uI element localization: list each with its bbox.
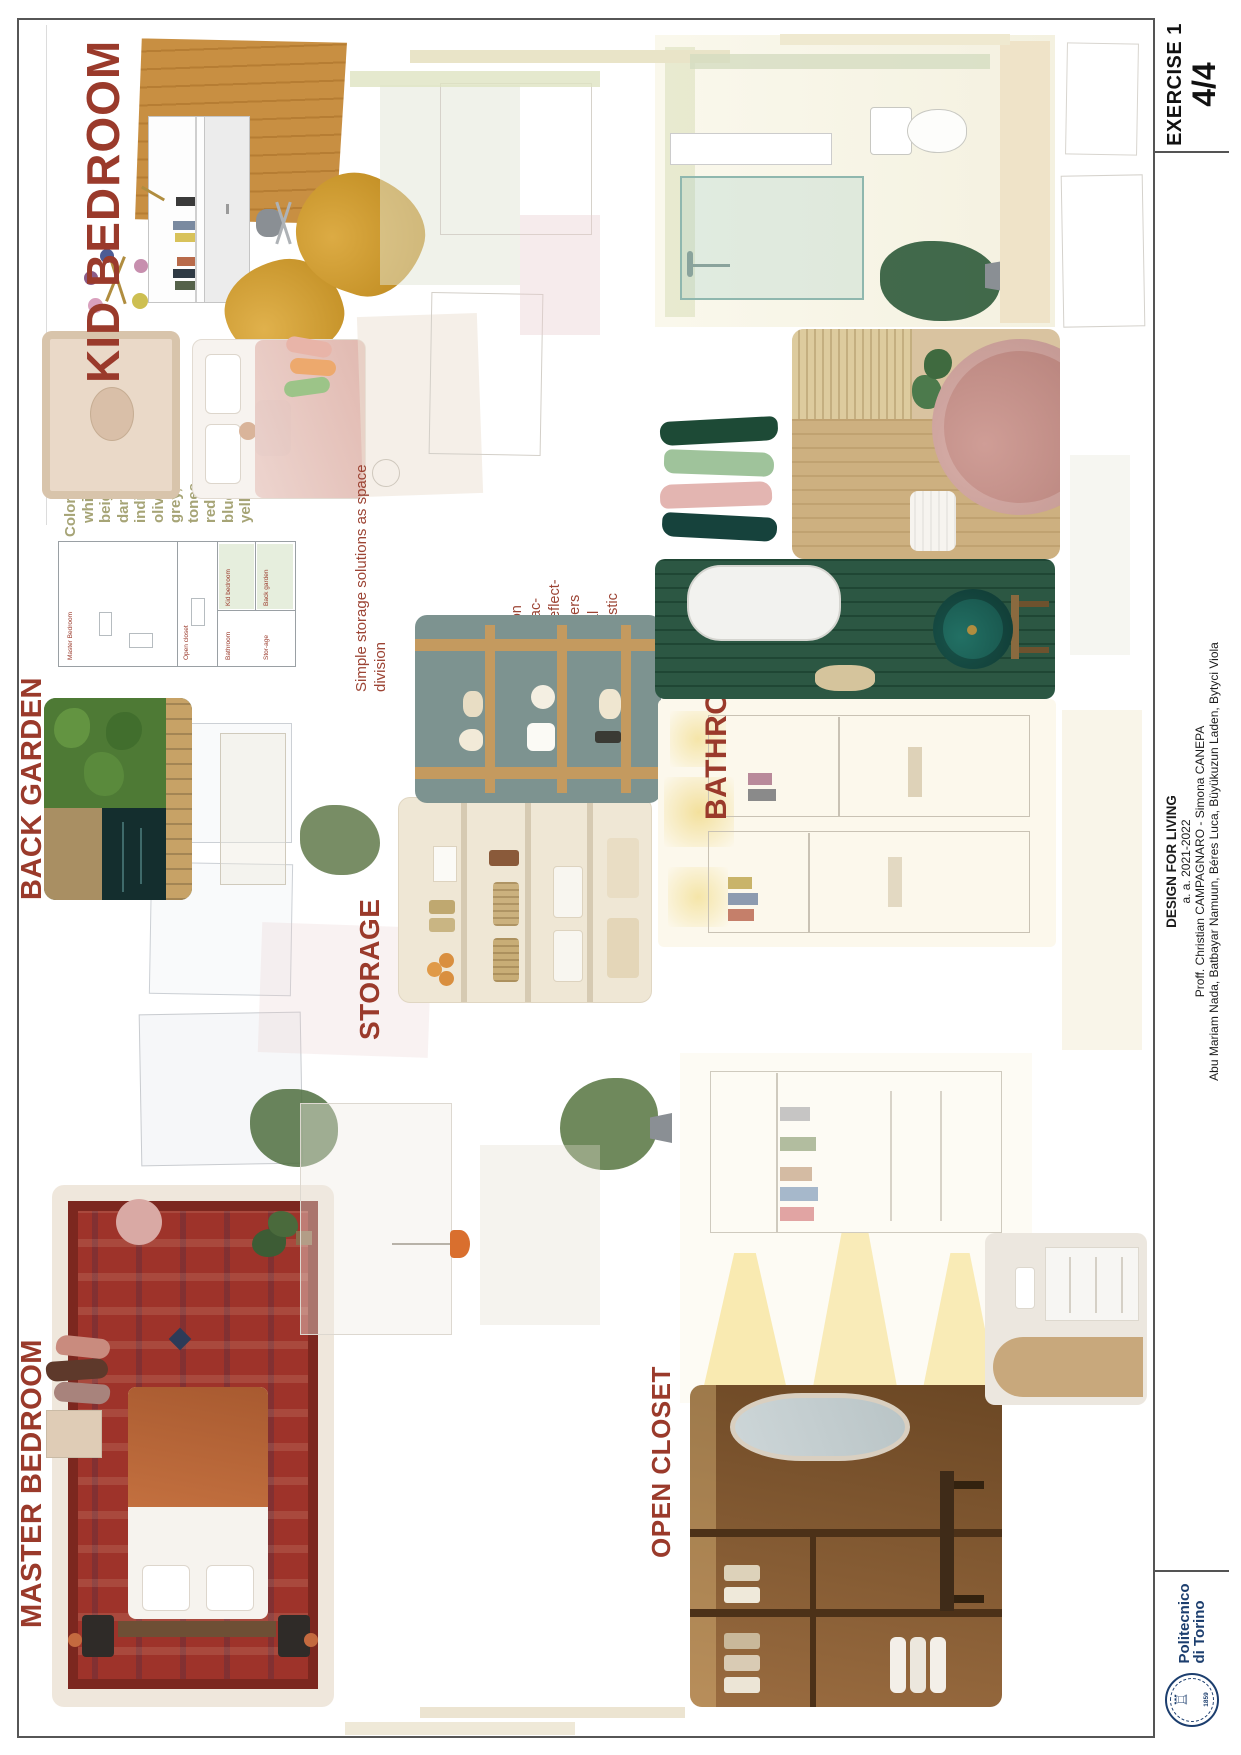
plan-label-bathroom: Bathroom bbox=[225, 612, 232, 660]
hanging-clothes bbox=[780, 1107, 810, 1121]
pantry-box bbox=[433, 846, 457, 882]
folded-clothes bbox=[908, 747, 922, 797]
logo-cell: ♖ 1859 Politecnico di Torino bbox=[1155, 1570, 1229, 1738]
heading-kid-bedroom: KID BEDROOM bbox=[76, 40, 130, 383]
watercolor-strip bbox=[690, 54, 990, 69]
note-line: division bbox=[371, 464, 390, 692]
basket bbox=[607, 918, 639, 978]
wood-arch-door bbox=[993, 1337, 1143, 1397]
pillow bbox=[142, 1565, 190, 1611]
towel-stack bbox=[930, 1637, 946, 1693]
photo-back-garden bbox=[44, 698, 192, 900]
garden-pool bbox=[102, 808, 166, 900]
hanging-clothes bbox=[748, 789, 776, 801]
bed-sketch bbox=[300, 1103, 452, 1335]
white-towel bbox=[910, 491, 956, 551]
book-spine bbox=[177, 257, 195, 266]
plan-label-kid: Kid bedroom bbox=[225, 548, 232, 606]
bathtub bbox=[687, 565, 841, 641]
plant-pot-sketch bbox=[650, 1113, 672, 1143]
watercolor-strip bbox=[345, 1722, 575, 1735]
oranges bbox=[439, 971, 454, 986]
chandelier-globe bbox=[134, 259, 148, 273]
shelf-line bbox=[525, 798, 531, 1002]
sink-drain bbox=[967, 625, 977, 635]
photo-pantry-shelves bbox=[398, 797, 652, 1003]
closet-shelf bbox=[810, 1531, 816, 1707]
bed bbox=[128, 1387, 268, 1619]
photo-green-tile-bathroom bbox=[655, 559, 1055, 699]
paint-swatch-sage bbox=[664, 449, 775, 477]
book-spine bbox=[173, 221, 195, 230]
university-name-line1: Politecnico bbox=[1177, 1583, 1192, 1663]
book-spine bbox=[176, 197, 195, 206]
ceramic-bowl bbox=[463, 691, 483, 717]
shelf-board bbox=[485, 625, 495, 793]
shelf-board bbox=[621, 625, 631, 793]
foliage bbox=[54, 708, 90, 748]
hanging-clothes bbox=[780, 1207, 814, 1221]
title-block: ♖ 1859 Politecnico di Torino DESIGN FOR … bbox=[1153, 18, 1229, 1738]
watercolor-strip bbox=[410, 50, 730, 63]
ceramic-bowl bbox=[599, 689, 621, 719]
drawer-line bbox=[1095, 1257, 1097, 1313]
pool-reflection bbox=[122, 822, 124, 892]
bench-leg bbox=[954, 1481, 984, 1489]
book-spine bbox=[175, 281, 195, 290]
bedside-lamp bbox=[304, 1633, 318, 1647]
shelf-line bbox=[461, 798, 467, 1002]
cabinet-handle bbox=[226, 204, 229, 214]
course-title: DESIGN FOR LIVING bbox=[1164, 795, 1179, 928]
shelf-sketch bbox=[220, 733, 286, 885]
oval-mirror bbox=[730, 1393, 910, 1461]
hanging-clothes bbox=[724, 1587, 760, 1603]
hanging-clothes bbox=[780, 1167, 812, 1181]
photo-wood-closet bbox=[690, 1385, 1002, 1707]
photo-dresser bbox=[985, 1233, 1147, 1405]
bottle bbox=[595, 731, 621, 743]
shower-head bbox=[687, 251, 693, 277]
paint-swatch-mauve bbox=[53, 1381, 110, 1405]
open-closet-sketch bbox=[680, 1053, 1032, 1403]
watercolor-strip bbox=[350, 71, 600, 87]
pool-reflection bbox=[140, 828, 142, 884]
plan-furniture bbox=[129, 633, 153, 648]
shelf-line bbox=[195, 117, 197, 302]
bathroom-sketch bbox=[655, 35, 1055, 327]
floor-wash bbox=[1000, 41, 1050, 323]
credits-cell: DESIGN FOR LIVING a. a. 2021-2022 Proff.… bbox=[1155, 153, 1229, 1570]
seal-year: 1859 bbox=[1203, 1675, 1210, 1725]
storage-bin bbox=[553, 866, 583, 918]
wardrobe-sketch bbox=[708, 831, 1030, 933]
shelf-line bbox=[890, 1091, 892, 1221]
bench bbox=[940, 1471, 954, 1611]
glass-shower-sketch bbox=[680, 176, 864, 300]
foliage bbox=[84, 752, 124, 796]
closet-divider bbox=[690, 1609, 1002, 1617]
hanging-clothes bbox=[724, 1655, 760, 1671]
professors: Proff. Christian CAMPAGNARO - Simona CAN… bbox=[1193, 726, 1207, 997]
plan-furniture bbox=[99, 612, 112, 636]
nightstand bbox=[82, 1615, 114, 1657]
note-line: Simple storage solutions as space bbox=[352, 464, 371, 692]
university-name: Politecnico di Torino bbox=[1177, 1583, 1207, 1663]
shelf-line bbox=[940, 1091, 942, 1221]
wood-pergola bbox=[166, 698, 192, 900]
plan-label-storage: Stor-age bbox=[263, 614, 270, 660]
design-board: MASTER BEDROOM BACK GARDEN bbox=[0, 0, 1241, 1755]
pantry-jar bbox=[429, 918, 455, 932]
bed-headboard bbox=[118, 1621, 276, 1637]
watercolor-wash bbox=[520, 215, 600, 335]
rack-rail bbox=[776, 1073, 778, 1233]
watercolor-strip bbox=[420, 1707, 685, 1718]
spotlight-beam bbox=[700, 1253, 790, 1403]
students: Abu Mariam Nada, Batbayar Namuun, Béres … bbox=[1207, 642, 1221, 1081]
pillow bbox=[205, 354, 241, 414]
rug-medallion bbox=[90, 387, 134, 441]
book-spine bbox=[175, 233, 195, 242]
paint-swatch-peach bbox=[289, 357, 336, 376]
kid-bed bbox=[192, 339, 366, 499]
toilet-sketch bbox=[907, 109, 967, 153]
rope-decor bbox=[815, 665, 875, 691]
hanging-clothes bbox=[728, 909, 754, 921]
plant-sketch bbox=[880, 241, 1000, 321]
pendant-lamp-sketch bbox=[450, 1230, 470, 1258]
plan-wall bbox=[217, 610, 295, 611]
hanging-clothes bbox=[780, 1187, 818, 1201]
paint-swatch-pink bbox=[660, 481, 773, 509]
pillow bbox=[206, 1565, 254, 1611]
university-name-line2: di Torino bbox=[1192, 1583, 1207, 1663]
drawer-line bbox=[1069, 1257, 1071, 1313]
wardrobe-sketch bbox=[708, 715, 1030, 817]
hanging-clothes bbox=[748, 773, 772, 785]
exercise-cell: EXERCISE 1 4/4 bbox=[1155, 18, 1229, 153]
watercolor-wash bbox=[1070, 455, 1130, 655]
plan-wall bbox=[255, 542, 256, 611]
room-sketch bbox=[1061, 174, 1146, 327]
hanging-clothes bbox=[724, 1633, 760, 1649]
bedside-lamp bbox=[68, 1633, 82, 1647]
watercolor-strip bbox=[780, 34, 1010, 45]
pendant-cord-sketch bbox=[392, 1243, 452, 1245]
hanging-clothes bbox=[728, 893, 758, 905]
floor-plan: Master Bedroom Open closet Bathroom Kid … bbox=[58, 541, 296, 667]
plan-wall bbox=[217, 542, 218, 666]
watercolor-wash bbox=[1062, 710, 1142, 1050]
towel-stack bbox=[910, 1637, 926, 1693]
chandelier-globe bbox=[132, 293, 148, 309]
poster-page: MASTER BEDROOM BACK GARDEN bbox=[0, 0, 1241, 1755]
folded-clothes bbox=[888, 857, 902, 907]
drawer-line bbox=[1121, 1257, 1123, 1313]
white-dresser bbox=[1045, 1247, 1139, 1321]
warm-light-strip bbox=[690, 1385, 716, 1707]
closet-rack-sketch bbox=[710, 1071, 1002, 1233]
photo-wood-pink-tub bbox=[792, 329, 1060, 559]
pink-pouf bbox=[116, 1199, 162, 1245]
seal-castle-icon: ♖ bbox=[1173, 1675, 1190, 1725]
pantry-jar bbox=[429, 900, 455, 914]
scale bbox=[531, 685, 555, 709]
basket bbox=[607, 838, 639, 898]
plant-leaves bbox=[268, 1211, 298, 1237]
ceramic-bowl bbox=[459, 729, 483, 751]
bench-leg bbox=[954, 1595, 984, 1603]
material-swatch-beige bbox=[46, 1410, 102, 1458]
hanging-clothes bbox=[728, 877, 752, 889]
basket bbox=[493, 882, 519, 926]
hanging-clothes bbox=[780, 1137, 816, 1151]
shelf-line bbox=[808, 833, 810, 933]
bamboo-blind bbox=[792, 329, 912, 419]
wood-deck bbox=[44, 808, 104, 900]
exercise-label: EXERCISE 1 bbox=[1164, 23, 1187, 146]
heading-master-bedroom: MASTER BEDROOM bbox=[16, 1339, 49, 1628]
watercolor-wash bbox=[480, 1145, 600, 1325]
plan-furniture bbox=[191, 598, 205, 626]
shelf-board bbox=[557, 625, 567, 793]
stool-leg bbox=[1019, 647, 1049, 653]
hanging-clothes bbox=[724, 1565, 760, 1581]
oranges bbox=[427, 962, 442, 977]
plan-label-master: Master Bedroom bbox=[67, 608, 74, 660]
room-sketch bbox=[440, 83, 592, 235]
room-sketch bbox=[1065, 42, 1139, 155]
plan-wall bbox=[177, 542, 178, 666]
stool-leg bbox=[1019, 601, 1049, 607]
shelf-line bbox=[587, 798, 593, 1002]
photo-wood-shelf-decor bbox=[415, 615, 661, 803]
heading-open-closet: OPEN CLOSET bbox=[646, 1366, 677, 1558]
hanging-clothes bbox=[724, 1677, 760, 1693]
storage-bin bbox=[553, 930, 583, 982]
towel bbox=[1015, 1267, 1035, 1309]
kid-wall-shelf bbox=[148, 116, 250, 303]
academic-year: a. a. 2021-2022 bbox=[1179, 819, 1193, 903]
shower-pipe bbox=[690, 264, 730, 267]
toilet-tank-sketch bbox=[870, 107, 912, 155]
basket bbox=[493, 938, 519, 982]
shower-column bbox=[670, 133, 832, 165]
book-spine bbox=[173, 269, 195, 278]
spotlight-beam bbox=[810, 1233, 900, 1403]
sheet-number: 4/4 bbox=[1187, 62, 1221, 106]
pillow bbox=[205, 424, 241, 484]
note-storage: Simple storage solutions as space divisi… bbox=[352, 464, 390, 692]
heading-storage: STORAGE bbox=[354, 899, 386, 1040]
towel-stack bbox=[890, 1637, 906, 1693]
politecnico-seal: ♖ 1859 bbox=[1165, 1673, 1219, 1727]
closet-divider bbox=[690, 1529, 1002, 1537]
kettle bbox=[527, 723, 555, 751]
plan-label-open-closet: Open closet bbox=[183, 608, 190, 660]
shelf-line bbox=[838, 717, 840, 817]
terracotta-blanket bbox=[128, 1387, 268, 1507]
pantry-bottle bbox=[489, 850, 519, 866]
plan-label-back-garden: Back garden bbox=[263, 548, 270, 606]
